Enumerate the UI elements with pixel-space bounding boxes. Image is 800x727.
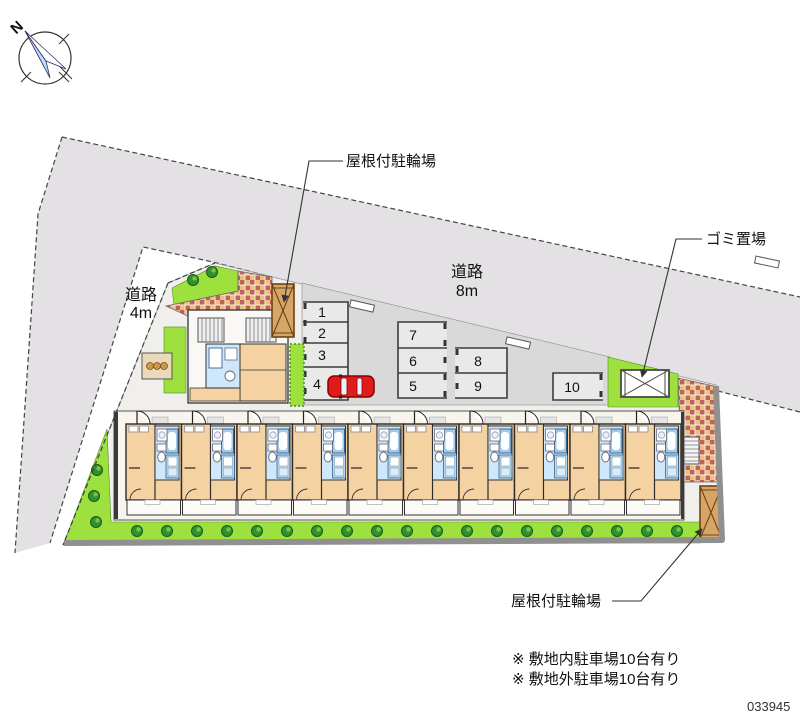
site-plan-drawing: 1 2 3 4 5 6 7 8 9 10	[0, 0, 800, 727]
parking-stalls-5-7	[398, 322, 447, 398]
stall-number: 3	[318, 347, 326, 363]
stall-number: 8	[474, 353, 482, 369]
site-plan-page: 1 2 3 4 5 6 7 8 9 10	[0, 0, 800, 727]
building-end-wall	[681, 412, 684, 519]
outdoor-stairs-right	[682, 437, 699, 464]
hedge	[290, 344, 304, 406]
stall-number: 2	[318, 325, 326, 341]
stall-number: 6	[409, 353, 417, 369]
planter-box	[142, 353, 172, 379]
stall-number: 1	[318, 304, 326, 320]
red-car	[328, 375, 374, 399]
label-road-left-name: 道路	[125, 286, 157, 304]
manager-room	[240, 344, 286, 401]
windshield	[341, 378, 347, 395]
compass-north-label: N	[7, 18, 26, 38]
label-road-top-width: 8m	[456, 283, 478, 300]
stall-number: 5	[409, 378, 417, 394]
label-road-left-width: 4m	[130, 305, 152, 322]
apartment-building	[114, 411, 684, 520]
label-road-top-name: 道路	[451, 263, 483, 281]
label-bicycle-parking-top: 屋根付駐輪場	[346, 153, 436, 170]
note-offsite-parking: ※ 敷地外駐車場10台有り	[512, 670, 680, 688]
covered-bicycle-shed-top	[272, 284, 294, 337]
stall-number: 7	[409, 327, 417, 343]
stall-number: 10	[564, 379, 580, 395]
rear-window	[357, 378, 362, 395]
stall-number: 4	[313, 376, 321, 392]
plan-number: 033945	[747, 699, 790, 714]
label-garbage-area: ゴミ置場	[706, 230, 766, 248]
note-onsite-parking: ※ 敷地内駐車場10台有り	[512, 650, 680, 668]
stall-number: 9	[474, 378, 482, 394]
building-end-wall	[114, 412, 118, 519]
label-bicycle-parking-bottom: 屋根付駐輪場	[511, 593, 601, 610]
compass: N	[7, 18, 72, 84]
